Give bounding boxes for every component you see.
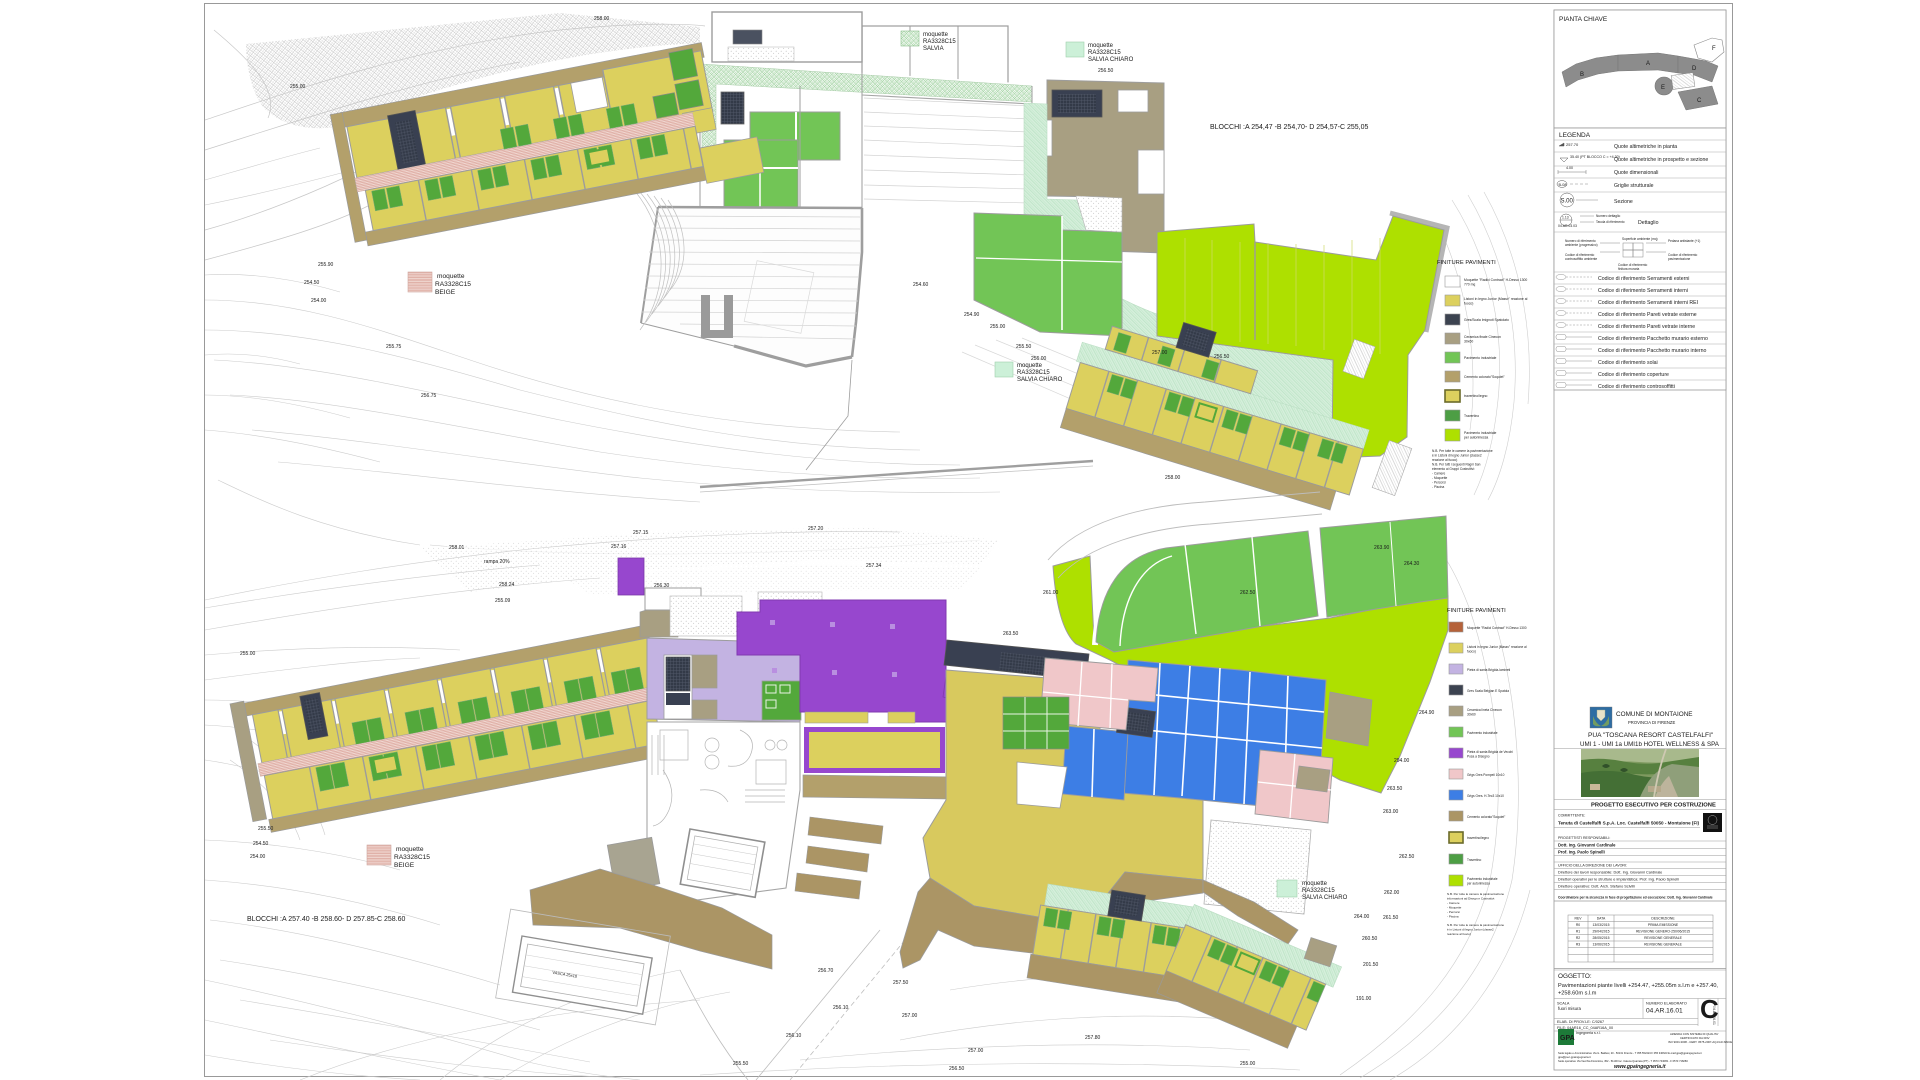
- svg-text:reazione al fuoco): reazione al fuoco): [1447, 932, 1471, 936]
- svg-text:256.10: 256.10: [833, 1005, 849, 1011]
- svg-text:Codice di riferimento Serramen: Codice di riferimento Serramenti esterni: [1598, 276, 1689, 282]
- svg-text:Pavimento industriale: Pavimento industriale: [1467, 731, 1498, 735]
- svg-text:è in Listoni di legno Junior (: è in Listoni di legno Junior (classe2: [1447, 928, 1494, 932]
- svg-text:255.50: 255.50: [733, 1061, 749, 1067]
- svg-text:per autorimessa: per autorimessa: [1464, 436, 1488, 440]
- svg-text:BEIGE: BEIGE: [435, 289, 456, 296]
- svg-text:4.00: 4.00: [1566, 166, 1573, 170]
- svg-text:moquette: moquette: [1088, 43, 1114, 49]
- svg-text:Pietra di santa Brigida-lamine: Pietra di santa Brigida-lamineti: [1467, 668, 1511, 672]
- svg-text:191.00: 191.00: [1356, 996, 1372, 1002]
- svg-text:256.70: 256.70: [818, 968, 834, 974]
- svg-text:Ingegneria s.r.l.: Ingegneria s.r.l.: [1576, 1031, 1601, 1035]
- svg-text:FINITURE PAVIMENTI: FINITURE PAVIMENTI: [1447, 608, 1506, 614]
- svg-text:Codice di riferimento solai: Codice di riferimento solai: [1598, 360, 1658, 366]
- svg-text:256.50: 256.50: [1098, 68, 1114, 74]
- svg-text:255.00: 255.00: [990, 324, 1006, 330]
- svg-text:Quote altimetriche in prospett: Quote altimetriche in prospetto e sezion…: [1614, 157, 1708, 163]
- svg-text:256.10: 256.10: [786, 1033, 802, 1039]
- svg-text:PUA "TOSCANA RESORT CASTELFALF: PUA "TOSCANA RESORT CASTELFALFI": [1588, 732, 1714, 739]
- svg-text:Travertino: Travertino: [1464, 414, 1479, 418]
- svg-text:moquette: moquette: [396, 846, 424, 853]
- svg-text:- Percorsi: - Percorsi: [1447, 910, 1460, 914]
- svg-text:COMUNE DI MONTAIONE: COMUNE DI MONTAIONE: [1616, 711, 1693, 718]
- svg-text:255.00: 255.00: [240, 651, 256, 657]
- svg-text:28/05/2015: 28/05/2015: [1593, 936, 1610, 940]
- svg-text:UFFICIO DELLA DIREZIONE DEI LA: UFFICIO DELLA DIREZIONE DEI LAVORI:: [1558, 864, 1627, 868]
- svg-text:PRIMA EMISSIONE: PRIMA EMISSIONE: [1648, 923, 1679, 927]
- svg-text:PROVINCIA DI FIRENZE: PROVINCIA DI FIRENZE: [1628, 720, 1675, 725]
- svg-text:Dott. Ing. Giovanni Cardinale: Dott. Ing. Giovanni Cardinale: [1558, 843, 1616, 848]
- svg-text:Cemento colorato"Soquiet": Cemento colorato"Soquiet": [1464, 375, 1505, 379]
- svg-text:263.50: 263.50: [1387, 786, 1403, 792]
- svg-text:Direttore operativo: Dott. Arc: Direttore operativo: Dott. Arch. Stefano…: [1558, 885, 1635, 889]
- svg-text:Codice di riferimento Pacchett: Codice di riferimento Pacchetto murario …: [1598, 348, 1707, 354]
- svg-text:Coordinatore per la sicurezza: Coordinatore per la sicurezza in fase di…: [1558, 896, 1713, 900]
- svg-text:294.00: 294.00: [1394, 758, 1410, 764]
- svg-text:REVISIONE GENERALE: REVISIONE GENERALE: [1644, 936, 1683, 940]
- svg-text:255.09: 255.09: [495, 598, 511, 604]
- svg-text:255.50: 255.50: [1016, 344, 1032, 350]
- svg-text:informazioni ad Disegn e Costr: informazioni ad Disegn e Costruttivi:: [1447, 897, 1495, 901]
- svg-text:PROGETTO ESECUTIVO PER COSTRU: PROGETTO ESECUTIVO PER COSTRUZIONE: [1591, 803, 1716, 809]
- svg-text:- Piscina: - Piscina: [1447, 915, 1459, 919]
- svg-text:256.00: 256.00: [1031, 356, 1047, 362]
- svg-text:35.40 (PT BLOCCO C = +4.30): 35.40 (PT BLOCCO C = +4.30): [1570, 155, 1620, 159]
- svg-text:Pavimentazioni piante livelli: Pavimentazioni piante livelli +254.47, +…: [1558, 983, 1718, 989]
- svg-text:SALVIA: SALVIA: [923, 46, 944, 52]
- svg-text:264.00: 264.00: [1354, 914, 1370, 920]
- svg-text:257.00: 257.00: [902, 1013, 918, 1019]
- svg-text:- Percorsi: - Percorsi: [1432, 481, 1446, 485]
- svg-text:- Piscina: - Piscina: [1432, 485, 1444, 489]
- svg-text:Listoni in legno Junior (Massv: Listoni in legno Junior (Massv" reazione…: [1464, 297, 1528, 301]
- svg-text:RA3328C15: RA3328C15: [1017, 370, 1050, 376]
- svg-text:261.00: 261.00: [1043, 590, 1059, 596]
- svg-text:RA3328C15: RA3328C15: [1302, 888, 1335, 894]
- svg-text:COMMITTENTE:: COMMITTENTE:: [1558, 814, 1585, 818]
- svg-text:254.90: 254.90: [964, 312, 980, 318]
- svg-text:per autorimessa: per autorimessa: [1467, 882, 1490, 886]
- svg-text:R1: R1: [1576, 930, 1580, 934]
- svg-text:B-08: B-08: [1559, 183, 1567, 187]
- svg-text:261.50: 261.50: [1383, 915, 1399, 921]
- svg-text:OGGETTO:: OGGETTO:: [1558, 973, 1592, 980]
- svg-text:13/06/2015: 13/06/2015: [1593, 943, 1610, 947]
- svg-text:DESCRIZIONE: DESCRIZIONE: [1651, 917, 1675, 921]
- svg-text:255.00: 255.00: [290, 84, 306, 90]
- svg-text:255.50: 255.50: [258, 826, 274, 832]
- svg-text:SALVIA CHIARO: SALVIA CHIARO: [1017, 377, 1063, 383]
- svg-text:Travertino: Travertino: [1467, 858, 1481, 862]
- svg-text:+258.60m s.l.m: +258.60m s.l.m: [1558, 991, 1597, 997]
- svg-text:SCALA: SCALA: [1557, 1002, 1570, 1006]
- svg-text:29/04/2015: 29/04/2015: [1593, 930, 1610, 934]
- svg-text:Tenuta di Castelfalfi S.p.A.: Tenuta di Castelfalfi S.p.A. Loc. Castel…: [1558, 821, 1700, 826]
- svg-text:254.60: 254.60: [913, 282, 929, 288]
- svg-text:Codice di riferimento Serramen: Codice di riferimento Serramenti interni: [1598, 288, 1688, 294]
- svg-text:NUMERO ELABORATO: NUMERO ELABORATO: [1646, 1002, 1687, 1006]
- svg-text:LEGENDA: LEGENDA: [1559, 132, 1591, 139]
- svg-text:F: F: [1712, 46, 1716, 52]
- svg-text:Pavimento industriale: Pavimento industriale: [1464, 356, 1497, 360]
- svg-text:Quote dimensionali: Quote dimensionali: [1614, 170, 1658, 176]
- svg-text:finitura muraria: finitura muraria: [1618, 267, 1639, 271]
- svg-text:travertino/legno: travertino/legno: [1467, 836, 1489, 840]
- svg-text:ISO 9001:2008 - CERT. 0575-200: ISO 9001:2008 - CERT. 0575-2007-AQ-FLR-S…: [1668, 1040, 1732, 1044]
- svg-text:04.AR.03.03: 04.AR.03.03: [1558, 224, 1577, 228]
- svg-text:Direttore dei lavori responsab: Direttore dei lavori responsabile: Dott.…: [1558, 871, 1662, 875]
- svg-text:Prof. Ing. Paolo Spinelli: Prof. Ing. Paolo Spinelli: [1558, 850, 1605, 855]
- svg-text:REVISIONE GENERO-250/06/2015: REVISIONE GENERO-250/06/2015: [1636, 930, 1690, 934]
- svg-text:263.90: 263.90: [1374, 545, 1390, 551]
- svg-text:Pavimento industriale: Pavimento industriale: [1467, 877, 1498, 881]
- svg-text:pavimentazione: pavimentazione: [1668, 257, 1691, 261]
- svg-text:255.90: 255.90: [318, 262, 334, 268]
- svg-text:rampa 20%: rampa 20%: [484, 559, 510, 565]
- svg-text:258.00: 258.00: [1165, 475, 1181, 481]
- svg-text:258.24: 258.24: [499, 582, 515, 588]
- svg-text:UMI 1 - UMI 1a UMI1b HOTEL W: UMI 1 - UMI 1a UMI1b HOTEL WELLNESS & SP…: [1580, 741, 1720, 748]
- svg-text:201.50: 201.50: [1363, 962, 1379, 968]
- svg-text:257.00: 257.00: [1152, 350, 1168, 356]
- svg-text:gpa@pec.gpaingegneria.it: gpa@pec.gpaingegneria.it: [1558, 1055, 1591, 1059]
- svg-text:A: A: [1646, 61, 1650, 67]
- svg-text:04.AR.16.01: 04.AR.16.01: [1646, 1008, 1683, 1015]
- svg-text:RA3328C15: RA3328C15: [394, 854, 430, 861]
- svg-text:REVISIONE GENERALE: REVISIONE GENERALE: [1644, 943, 1683, 947]
- svg-text:Superficie ambiente (mq): Superficie ambiente (mq): [1622, 237, 1658, 241]
- svg-text:256.75: 256.75: [421, 393, 437, 399]
- svg-text:Codice di riferimento Pareti v: Codice di riferimento Pareti vetrate int…: [1598, 324, 1695, 330]
- svg-text:262.00: 262.00: [1384, 890, 1400, 896]
- svg-text:257.70: 257.70: [1566, 142, 1579, 147]
- svg-text:257.34: 257.34: [866, 563, 882, 569]
- svg-text:04.AR.16.01: 04.AR.16.01: [1712, 1006, 1716, 1025]
- svg-text:Numero dettaglio: Numero dettaglio: [1596, 214, 1621, 218]
- svg-text:R2: R2: [1576, 936, 1580, 940]
- svg-text:N.B. Per tutti i seguenti Ragn: N.B. Per tutti i seguenti Ragni San: [1432, 463, 1481, 467]
- svg-text:Codice di riferimento Pacchett: Codice di riferimento Pacchetto murario …: [1598, 336, 1708, 342]
- svg-text:257.50: 257.50: [893, 980, 909, 986]
- svg-text:Grigs Gres Pompeii 10x10: Grigs Gres Pompeii 10x10: [1467, 773, 1505, 777]
- svg-text:BEIGE: BEIGE: [394, 862, 415, 869]
- svg-text:Gres Scala Belgian E Spatola: Gres Scala Belgian E Spatola: [1467, 689, 1509, 693]
- svg-text:13/03/2015: 13/03/2015: [1593, 923, 1610, 927]
- svg-text:255.75: 255.75: [386, 344, 402, 350]
- svg-text:è in Listoni di legno Junior (: è in Listoni di legno Junior (classe2: [1432, 454, 1482, 458]
- svg-text:262.50: 262.50: [1240, 590, 1256, 596]
- svg-text:254.50: 254.50: [253, 841, 269, 847]
- svg-text:Cemento colorato"Soquiet": Cemento colorato"Soquiet": [1467, 815, 1505, 819]
- svg-text:30x60: 30x60: [1464, 340, 1473, 344]
- svg-text:moquette: moquette: [437, 273, 465, 280]
- svg-text:Moquette "Radici Contract" H-D: Moquette "Radici Contract" H-Desso 1300: [1467, 626, 1527, 630]
- svg-text:N.B. Per tutte le camere la pa: N.B. Per tutte le camere la pavimentazio…: [1432, 449, 1493, 453]
- svg-text:Ceramica finale Cinecon: Ceramica finale Cinecon: [1464, 335, 1501, 339]
- svg-text:ELAB. DI PROV.LE: C/0: ELAB. DI PROV.LE: C/0267: [1557, 1020, 1604, 1024]
- svg-text:PIANTA CHIAVE: PIANTA CHIAVE: [1559, 16, 1608, 23]
- svg-text:256.50: 256.50: [1214, 354, 1230, 360]
- svg-text:254.00: 254.00: [311, 298, 327, 304]
- svg-text:Codice di riferimento Serramen: Codice di riferimento Serramenti interni…: [1598, 300, 1698, 306]
- svg-text:257.20: 257.20: [808, 526, 824, 532]
- svg-text:264.90: 264.90: [1419, 710, 1435, 716]
- svg-text:263.00: 263.00: [1383, 809, 1399, 815]
- svg-text:Quote altimetriche in pianta: Quote altimetriche in pianta: [1614, 144, 1677, 150]
- svg-text:257.16: 257.16: [611, 544, 627, 550]
- svg-text:260.50: 260.50: [1362, 936, 1378, 942]
- svg-text:- Camere: - Camere: [1447, 901, 1460, 905]
- svg-text:Sede operativa: Via Vecchia Fi: Sede operativa: Via Vecchia Fiorentina, …: [1558, 1059, 1688, 1063]
- svg-text:E: E: [1661, 85, 1665, 91]
- svg-text:fuori misura: fuori misura: [1558, 1006, 1581, 1011]
- svg-text:263.50: 263.50: [1003, 631, 1019, 637]
- svg-text:B: B: [1580, 72, 1584, 78]
- svg-text:258.01: 258.01: [449, 545, 465, 551]
- svg-text:D: D: [1692, 66, 1697, 72]
- svg-text:Ceramica lineta Cinecon: Ceramica lineta Cinecon: [1467, 708, 1502, 712]
- svg-text:R3: R3: [1576, 943, 1580, 947]
- svg-text:N.B. Per tutte le camere la pa: N.B. Per tutte le camere la pavimentazio…: [1447, 923, 1504, 927]
- svg-text:FINITURE PAVIMENTI: FINITURE PAVIMENTI: [1437, 260, 1496, 266]
- svg-text:Posa a Disegno: Posa a Disegno: [1467, 755, 1490, 759]
- svg-text:Codice di riferimento controso: Codice di riferimento controsoffitti: [1598, 384, 1675, 390]
- svg-text:fuoco): fuoco): [1467, 650, 1476, 654]
- svg-text:Tavola di riferimento: Tavola di riferimento: [1596, 220, 1625, 224]
- svg-text:Gres/Scala Imignoti Spatolato: Gres/Scala Imignoti Spatolato: [1464, 318, 1509, 322]
- svg-text:C: C: [1697, 98, 1702, 104]
- svg-text:travertino/legno: travertino/legno: [1464, 394, 1487, 398]
- svg-text:Pedana antistante (+1): Pedana antistante (+1): [1668, 239, 1700, 243]
- svg-text:Codice di riferimento Pareti v: Codice di riferimento Pareti vetrate est…: [1598, 312, 1697, 318]
- svg-text:- Moquette: - Moquette: [1447, 906, 1462, 910]
- svg-text:elemento ai Gruppi Costruttivi: elemento ai Gruppi Costruttivi:: [1432, 467, 1475, 471]
- svg-text:254.50: 254.50: [304, 280, 320, 286]
- svg-text:30x60: 30x60: [1467, 713, 1476, 717]
- svg-text:SALVIA CHIARO: SALVIA CHIARO: [1302, 895, 1348, 901]
- svg-text:Pavimento industriale: Pavimento industriale: [1464, 431, 1497, 435]
- svg-text:257.00: 257.00: [968, 1048, 984, 1054]
- svg-text:770 mq: 770 mq: [1464, 283, 1475, 287]
- svg-text:moquette: moquette: [923, 32, 949, 38]
- svg-text:RA3328C15: RA3328C15: [435, 281, 471, 288]
- svg-text:- Moquette: - Moquette: [1432, 476, 1447, 480]
- svg-text:N.B. Per tutte le camere la pa: N.B. Per tutte le camere la pavimentazio…: [1447, 892, 1504, 896]
- svg-text:moquette: moquette: [1017, 363, 1043, 369]
- svg-text:Codice di riferimento copertur: Codice di riferimento coperture: [1598, 372, 1669, 378]
- svg-text:264.30: 264.30: [1404, 561, 1420, 567]
- svg-text:256.50: 256.50: [949, 1066, 965, 1072]
- svg-text:Grigs Gres. H-Tec3 10x10: Grigs Gres. H-Tec3 10x10: [1467, 794, 1504, 798]
- svg-text:BLOCCHI :A 254,47 -B 254,70- D: BLOCCHI :A 254,47 -B 254,70- D 254,57-C …: [1210, 124, 1368, 131]
- svg-text:GPA: GPA: [1560, 1035, 1575, 1042]
- svg-text:257.15: 257.15: [633, 530, 649, 536]
- svg-text:Pietra di santa Brigida de Vec: Pietra di santa Brigida de Vecchi: [1467, 750, 1513, 754]
- svg-text:254.00: 254.00: [250, 854, 266, 860]
- svg-text:REV: REV: [1575, 917, 1583, 921]
- svg-text:S.00: S.00: [1561, 199, 1574, 205]
- svg-text:- Camere: - Camere: [1432, 472, 1446, 476]
- svg-text:SALVIA CHIARO: SALVIA CHIARO: [1088, 57, 1134, 63]
- svg-text:255.00: 255.00: [1240, 1061, 1256, 1067]
- svg-text:moquette: moquette: [1302, 881, 1328, 887]
- svg-text:R0: R0: [1576, 923, 1580, 927]
- svg-text:PROGETTISTI RESPONSABILI:: PROGETTISTI RESPONSABILI:: [1558, 836, 1610, 840]
- svg-text:www.gpaingegneria.it: www.gpaingegneria.it: [1614, 1064, 1666, 1070]
- svg-text:256.30: 256.30: [654, 583, 670, 589]
- svg-text:reazione al fuoco): reazione al fuoco): [1432, 458, 1457, 462]
- svg-text:ambiente (progressivo): ambiente (progressivo): [1565, 243, 1598, 247]
- svg-text:257.80: 257.80: [1085, 1035, 1101, 1041]
- svg-text:RA3328C15: RA3328C15: [1088, 50, 1121, 56]
- svg-text:Griglie strutturale: Griglie strutturale: [1614, 183, 1654, 189]
- svg-text:Moquette "Radici Contract" H-D: Moquette "Radici Contract" H-Desso 1300: [1464, 278, 1527, 282]
- svg-text:262.50: 262.50: [1399, 854, 1415, 860]
- svg-text:fuoco): fuoco): [1464, 302, 1473, 306]
- svg-text:Sezione: Sezione: [1614, 199, 1633, 205]
- svg-text:DATA: DATA: [1597, 917, 1606, 921]
- svg-text:controsoffitto ambiente: controsoffitto ambiente: [1565, 257, 1597, 261]
- svg-text:RA3328C15: RA3328C15: [923, 39, 956, 45]
- svg-text:Listoni in legno Junior (Massv: Listoni in legno Junior (Massv" reazione…: [1467, 645, 1527, 649]
- svg-text:258.00: 258.00: [594, 16, 610, 22]
- svg-text:1.13: 1.13: [1562, 216, 1569, 220]
- svg-text:Dettaglio: Dettaglio: [1638, 220, 1659, 226]
- svg-text:Direttori operativi per le str: Direttori operativi per le strutture e i…: [1558, 878, 1679, 882]
- svg-text:BLOCCHI :A 257.40 -B 258.60- D: BLOCCHI :A 257.40 -B 258.60- D 257.85-C …: [247, 916, 405, 923]
